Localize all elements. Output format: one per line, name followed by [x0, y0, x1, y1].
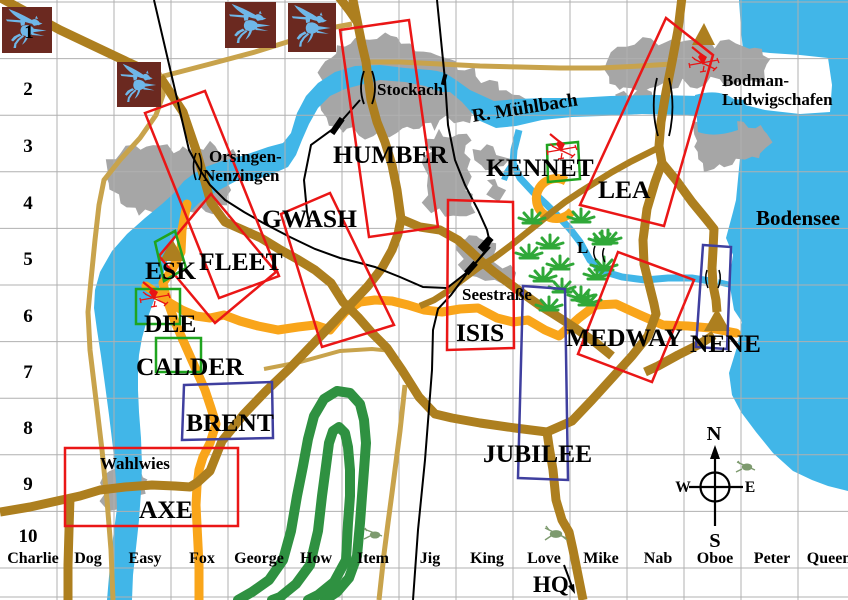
svg-text:JUBILEE: JUBILEE: [483, 439, 592, 468]
svg-text:KENNET: KENNET: [486, 153, 594, 182]
svg-text:Seestraße: Seestraße: [462, 285, 532, 304]
svg-text:Fox: Fox: [189, 550, 215, 567]
svg-text:N: N: [707, 423, 722, 445]
svg-text:8: 8: [23, 418, 33, 439]
svg-text:Queen: Queen: [807, 550, 848, 567]
svg-text:How: How: [300, 550, 332, 567]
svg-text:10: 10: [19, 526, 38, 547]
svg-text:9: 9: [23, 474, 33, 495]
svg-text:2: 2: [23, 79, 33, 100]
svg-text:LEA: LEA: [598, 175, 651, 204]
svg-text:5: 5: [23, 249, 33, 270]
svg-text:Item: Item: [357, 550, 390, 567]
svg-text:Love: Love: [527, 550, 561, 567]
svg-text:Peter: Peter: [754, 550, 790, 567]
svg-text:DEE: DEE: [144, 309, 196, 338]
svg-text:FLEET: FLEET: [199, 247, 283, 276]
svg-text:Mike: Mike: [583, 550, 619, 567]
svg-text:S: S: [709, 530, 720, 552]
svg-text:W: W: [675, 479, 691, 496]
svg-text:AXE: AXE: [139, 495, 193, 524]
svg-text:Charlie: Charlie: [7, 550, 59, 567]
svg-text:HUMBER: HUMBER: [333, 140, 448, 169]
svg-text:E: E: [745, 479, 755, 496]
svg-text:BRENT: BRENT: [186, 408, 274, 437]
svg-text:Wahlwies: Wahlwies: [100, 454, 170, 473]
svg-text:1: 1: [24, 22, 34, 43]
svg-text:Dog: Dog: [74, 550, 102, 567]
svg-text:Ludwigschafen: Ludwigschafen: [722, 90, 833, 109]
svg-text:King: King: [470, 550, 504, 567]
svg-text:6: 6: [23, 306, 33, 327]
svg-text:7: 7: [23, 362, 33, 383]
svg-text:Nenzingen: Nenzingen: [203, 166, 280, 185]
svg-text:Bodman-: Bodman-: [722, 71, 789, 90]
svg-text:ISIS: ISIS: [456, 318, 504, 347]
svg-text:MEDWAY: MEDWAY: [566, 323, 683, 352]
svg-text:4: 4: [23, 193, 33, 214]
svg-text:Nab: Nab: [644, 550, 673, 567]
svg-text:L: L: [577, 238, 588, 257]
svg-text:ESK: ESK: [145, 256, 196, 285]
svg-text:GWASH: GWASH: [262, 204, 357, 233]
svg-text:HQ: HQ: [533, 572, 569, 597]
svg-text:Oboe: Oboe: [697, 550, 733, 567]
svg-text:3: 3: [23, 136, 33, 157]
svg-text:Bodensee: Bodensee: [756, 206, 840, 230]
svg-text:CALDER: CALDER: [136, 352, 244, 381]
svg-text:Easy: Easy: [129, 550, 162, 567]
svg-text:NENE: NENE: [690, 329, 761, 358]
svg-text:Stockach: Stockach: [377, 80, 444, 99]
svg-text:Orsingen-: Orsingen-: [209, 147, 282, 166]
svg-text:Jig: Jig: [420, 550, 440, 567]
svg-text:George: George: [234, 550, 284, 567]
